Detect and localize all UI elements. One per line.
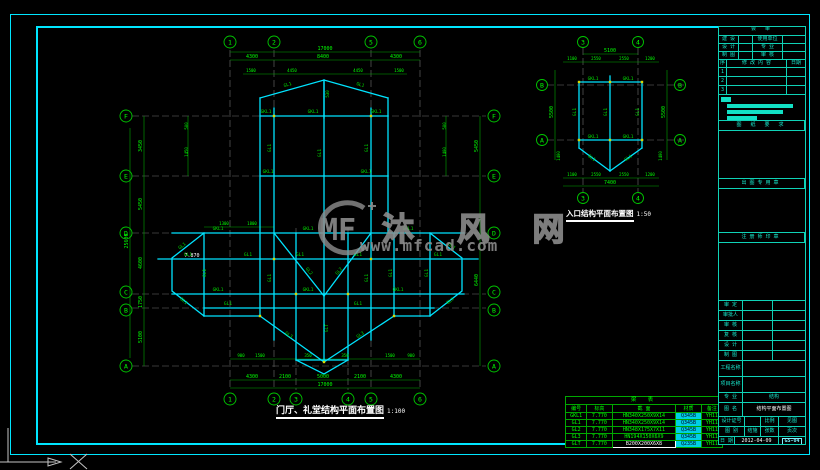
- svg-text:1300: 1300: [219, 221, 229, 226]
- section-box: [719, 131, 805, 179]
- svg-text:3450: 3450: [138, 140, 144, 152]
- svg-text:5500: 5500: [549, 106, 555, 118]
- svg-text:4450: 4450: [353, 68, 363, 73]
- svg-text:1400: 1400: [442, 147, 447, 157]
- svg-text:GL1: GL1: [202, 269, 208, 277]
- svg-text:GL1: GL1: [572, 108, 578, 116]
- svg-text:350: 350: [341, 353, 349, 358]
- svg-text:1200: 1200: [645, 56, 655, 61]
- svg-text:MF: MF: [320, 213, 356, 248]
- svg-text:A: A: [124, 363, 128, 371]
- svg-text:4600: 4600: [138, 257, 144, 269]
- meta-row: 图 别 结施 张数 页次: [719, 427, 805, 437]
- svg-text:GL1: GL1: [317, 149, 323, 157]
- col-header: 编号: [566, 405, 587, 413]
- review-header: 会 审: [719, 27, 805, 36]
- svg-text:2550: 2550: [619, 56, 629, 61]
- firm-name-bar: [727, 104, 793, 108]
- svg-text:5450: 5450: [138, 198, 144, 210]
- svg-text:GL1: GL1: [283, 81, 293, 89]
- svg-text:C: C: [492, 289, 496, 297]
- svg-text:GL1: GL1: [364, 144, 370, 152]
- svg-text:A: A: [540, 137, 544, 145]
- svg-text:GL1: GL1: [244, 252, 252, 258]
- revision-row: 2: [719, 77, 805, 86]
- svg-text:1: 1: [228, 39, 232, 47]
- section-header: 注册师印章: [719, 233, 805, 243]
- svg-text:GL1: GL1: [388, 269, 394, 277]
- svg-text:E: E: [492, 173, 496, 181]
- main-plan-title: 门厅、礼堂结构平面布置图1:100: [276, 403, 405, 419]
- svg-text:GL2: GL2: [334, 266, 344, 276]
- svg-text:GKL1: GKL1: [261, 109, 272, 115]
- svg-text:900: 900: [407, 353, 415, 358]
- svg-text:5100: 5100: [138, 331, 144, 343]
- svg-text:3: 3: [581, 39, 585, 47]
- table-row: GL27.770 HN348X175X7X11Q345B YH11: [566, 427, 723, 434]
- axis-bubbles: 3 4 3 4 B A B A: [537, 37, 686, 204]
- watermark-url: www.mfcad.com: [360, 236, 498, 255]
- svg-text:GL1: GL1: [179, 296, 189, 306]
- svg-text:2: 2: [272, 39, 276, 47]
- svg-text:6: 6: [418, 39, 422, 47]
- section-header: 出图专用章: [719, 179, 805, 189]
- signature-row: 审 核: [719, 321, 805, 331]
- svg-text:F: F: [492, 113, 496, 121]
- svg-text:E: E: [124, 173, 128, 181]
- svg-text:GL1: GL1: [267, 144, 273, 152]
- svg-text:1500: 1500: [255, 353, 265, 358]
- svg-text:1500: 1500: [385, 353, 395, 358]
- svg-text:7400: 7400: [604, 180, 616, 186]
- svg-text:GL1: GL1: [184, 252, 192, 258]
- signature-row: 审 定: [719, 301, 805, 311]
- svg-text:1500: 1500: [394, 68, 404, 73]
- firm-name-bar: [727, 116, 757, 120]
- signature-row: 设 计: [719, 341, 805, 351]
- svg-text:6440: 6440: [474, 274, 480, 286]
- svg-text:900: 900: [237, 353, 245, 358]
- svg-text:5000: 5000: [317, 374, 329, 380]
- svg-text:D: D: [124, 230, 128, 238]
- svg-text:B: B: [492, 307, 496, 315]
- svg-text:GL1: GL1: [635, 108, 641, 116]
- svg-text:A: A: [678, 137, 682, 145]
- svg-text:3: 3: [581, 195, 585, 203]
- svg-text:2100: 2100: [354, 374, 366, 380]
- section-box: [719, 189, 805, 233]
- revision-row: 1: [719, 68, 805, 77]
- svg-text:GKL1: GKL1: [263, 169, 274, 175]
- firm-name-bar: [727, 110, 783, 114]
- meta-row: 设计证号 比例 见图: [719, 417, 805, 427]
- svg-text:GL1: GL1: [356, 81, 366, 89]
- dimension-lines: [555, 54, 667, 186]
- svg-text:B: B: [540, 82, 544, 90]
- svg-text:350: 350: [304, 353, 312, 358]
- svg-text:GKL1: GKL1: [393, 287, 404, 293]
- svg-text:GL1: GL1: [354, 301, 362, 307]
- section-box: [719, 243, 805, 301]
- design-firm-block: [719, 95, 805, 121]
- svg-text:4300: 4300: [390, 54, 402, 60]
- svg-text:4300: 4300: [246, 374, 258, 380]
- svg-text:530: 530: [325, 90, 330, 98]
- svg-text:GKL1: GKL1: [213, 287, 224, 293]
- drawing-name-row: 图 名 结构平面布置图: [719, 403, 805, 417]
- sheet-number: GS-04: [782, 438, 801, 445]
- svg-text:GL1: GL1: [267, 274, 273, 282]
- beam-schedule-table: 梁 表 编号 标高 截 面 材质 备注 GKL17.770 HN340X250X…: [565, 396, 723, 448]
- svg-text:GL1: GL1: [177, 241, 187, 251]
- svg-text:2550: 2550: [591, 56, 601, 61]
- svg-text:500: 500: [184, 122, 189, 130]
- svg-text:5100: 5100: [604, 48, 616, 54]
- x-axis-label-icon: [70, 454, 87, 469]
- svg-text:GL1: GL1: [424, 269, 430, 277]
- svg-text:8400: 8400: [317, 54, 329, 60]
- svg-text:GKL1: GKL1: [308, 109, 319, 115]
- svg-text:1400: 1400: [556, 151, 561, 161]
- col-header: 标高: [587, 405, 612, 413]
- svg-text:C: C: [124, 289, 128, 297]
- svg-text:GLT: GLT: [324, 324, 330, 332]
- signature-row: 制 图: [719, 351, 805, 361]
- entry-plan-title: 入口结构平面布置图1:50: [566, 208, 651, 222]
- beam-table-header: 编号 标高 截 面 材质 备注: [566, 405, 723, 413]
- title-block: 会 审 建 设 使用单位 设 计 专 业 制 图 审 核 序 修 改 内 容 日…: [718, 26, 806, 445]
- table-row: GLT7.770 B200X200X6X8Q235B YH11: [566, 441, 723, 448]
- svg-text:B: B: [124, 307, 128, 315]
- svg-text:5450: 5450: [474, 140, 480, 152]
- svg-text:GL1: GL1: [224, 301, 232, 307]
- cad-sheet: 17000 4300 8400 4300 1500 4450 4450 1500…: [0, 0, 820, 470]
- revision-row: 3: [719, 86, 805, 95]
- svg-text:A: A: [492, 363, 496, 371]
- svg-text:1200: 1200: [645, 172, 655, 177]
- col-header: 材质: [676, 405, 701, 413]
- svg-text:GKL1: GKL1: [213, 226, 224, 232]
- discipline-row: 专 业 结构: [719, 393, 805, 403]
- svg-text:1450: 1450: [184, 147, 189, 157]
- svg-text:1: 1: [228, 396, 232, 404]
- col-header: 截 面: [612, 405, 676, 413]
- svg-text:GKL1: GKL1: [371, 109, 382, 115]
- firm-logo-mark: [721, 97, 731, 102]
- svg-text:2550: 2550: [591, 172, 601, 177]
- svg-text:1100: 1100: [567, 172, 577, 177]
- svg-text:5: 5: [369, 39, 373, 47]
- beam-table-title: 梁 表: [566, 397, 723, 405]
- svg-text:F: F: [124, 113, 128, 121]
- table-row: GL17.770 HN340X250X9X14Q345B YH11: [566, 420, 723, 427]
- svg-text:6: 6: [418, 396, 422, 404]
- svg-text:B: B: [678, 82, 682, 90]
- svg-text:GL1: GL1: [587, 153, 597, 163]
- signature-row: 审批人: [719, 311, 805, 321]
- table-row: GKL17.770 HN340X250X9X14Q345B YH11: [566, 413, 723, 420]
- grid-lines: [547, 48, 687, 192]
- unit-row: 建 设 使用单位: [719, 36, 805, 44]
- svg-text:GL2: GL2: [304, 266, 314, 276]
- svg-text:500: 500: [442, 122, 447, 130]
- svg-text:GL1: GL1: [603, 108, 609, 116]
- svg-text:4300: 4300: [246, 54, 258, 60]
- svg-text:1400: 1400: [658, 151, 663, 161]
- unit-row: 制 图 审 核: [719, 52, 805, 60]
- svg-text:GKL1: GKL1: [623, 76, 634, 82]
- ucs-axis-icon: [0, 424, 120, 470]
- svg-text:GL1: GL1: [364, 274, 370, 282]
- signature-row: 复 核: [719, 331, 805, 341]
- svg-text:GKL1: GKL1: [361, 169, 372, 175]
- date-row: 日 期 2012-04-09 GS-04: [719, 437, 805, 445]
- project-name-row: 工程名称: [719, 361, 805, 377]
- project-item-row: 项目名称: [719, 377, 805, 393]
- svg-text:1800: 1800: [247, 221, 257, 226]
- svg-text:4: 4: [636, 39, 640, 47]
- svg-text:GKL1: GKL1: [588, 134, 599, 140]
- svg-text:2100: 2100: [279, 374, 291, 380]
- svg-text:17000: 17000: [317, 382, 332, 388]
- svg-text:4300: 4300: [390, 374, 402, 380]
- revision-header: 序 修 改 内 容 日期: [719, 60, 805, 68]
- svg-text:5500: 5500: [661, 106, 667, 118]
- svg-text:GKL1: GKL1: [303, 287, 314, 293]
- svg-text:GKL1: GKL1: [623, 134, 634, 140]
- svg-text:GKL1: GKL1: [588, 76, 599, 82]
- section-header: 图 纸 要 求: [719, 121, 805, 131]
- svg-text:17000: 17000: [317, 46, 332, 52]
- table-row: GL37.770 HN194X150X6X9Q345B YH11: [566, 434, 723, 441]
- svg-text:1500: 1500: [246, 68, 256, 73]
- unit-row: 设 计 专 业: [719, 44, 805, 52]
- svg-text:4450: 4450: [287, 68, 297, 73]
- svg-text:1750: 1750: [138, 296, 144, 308]
- svg-text:2550: 2550: [619, 172, 629, 177]
- svg-text:GL3: GL3: [355, 330, 365, 340]
- svg-text:4: 4: [636, 195, 640, 203]
- entry-structural-plan: 5100 1100 2550 2550 1200 1100 2550 2550 …: [535, 30, 715, 230]
- svg-text:1100: 1100: [567, 56, 577, 61]
